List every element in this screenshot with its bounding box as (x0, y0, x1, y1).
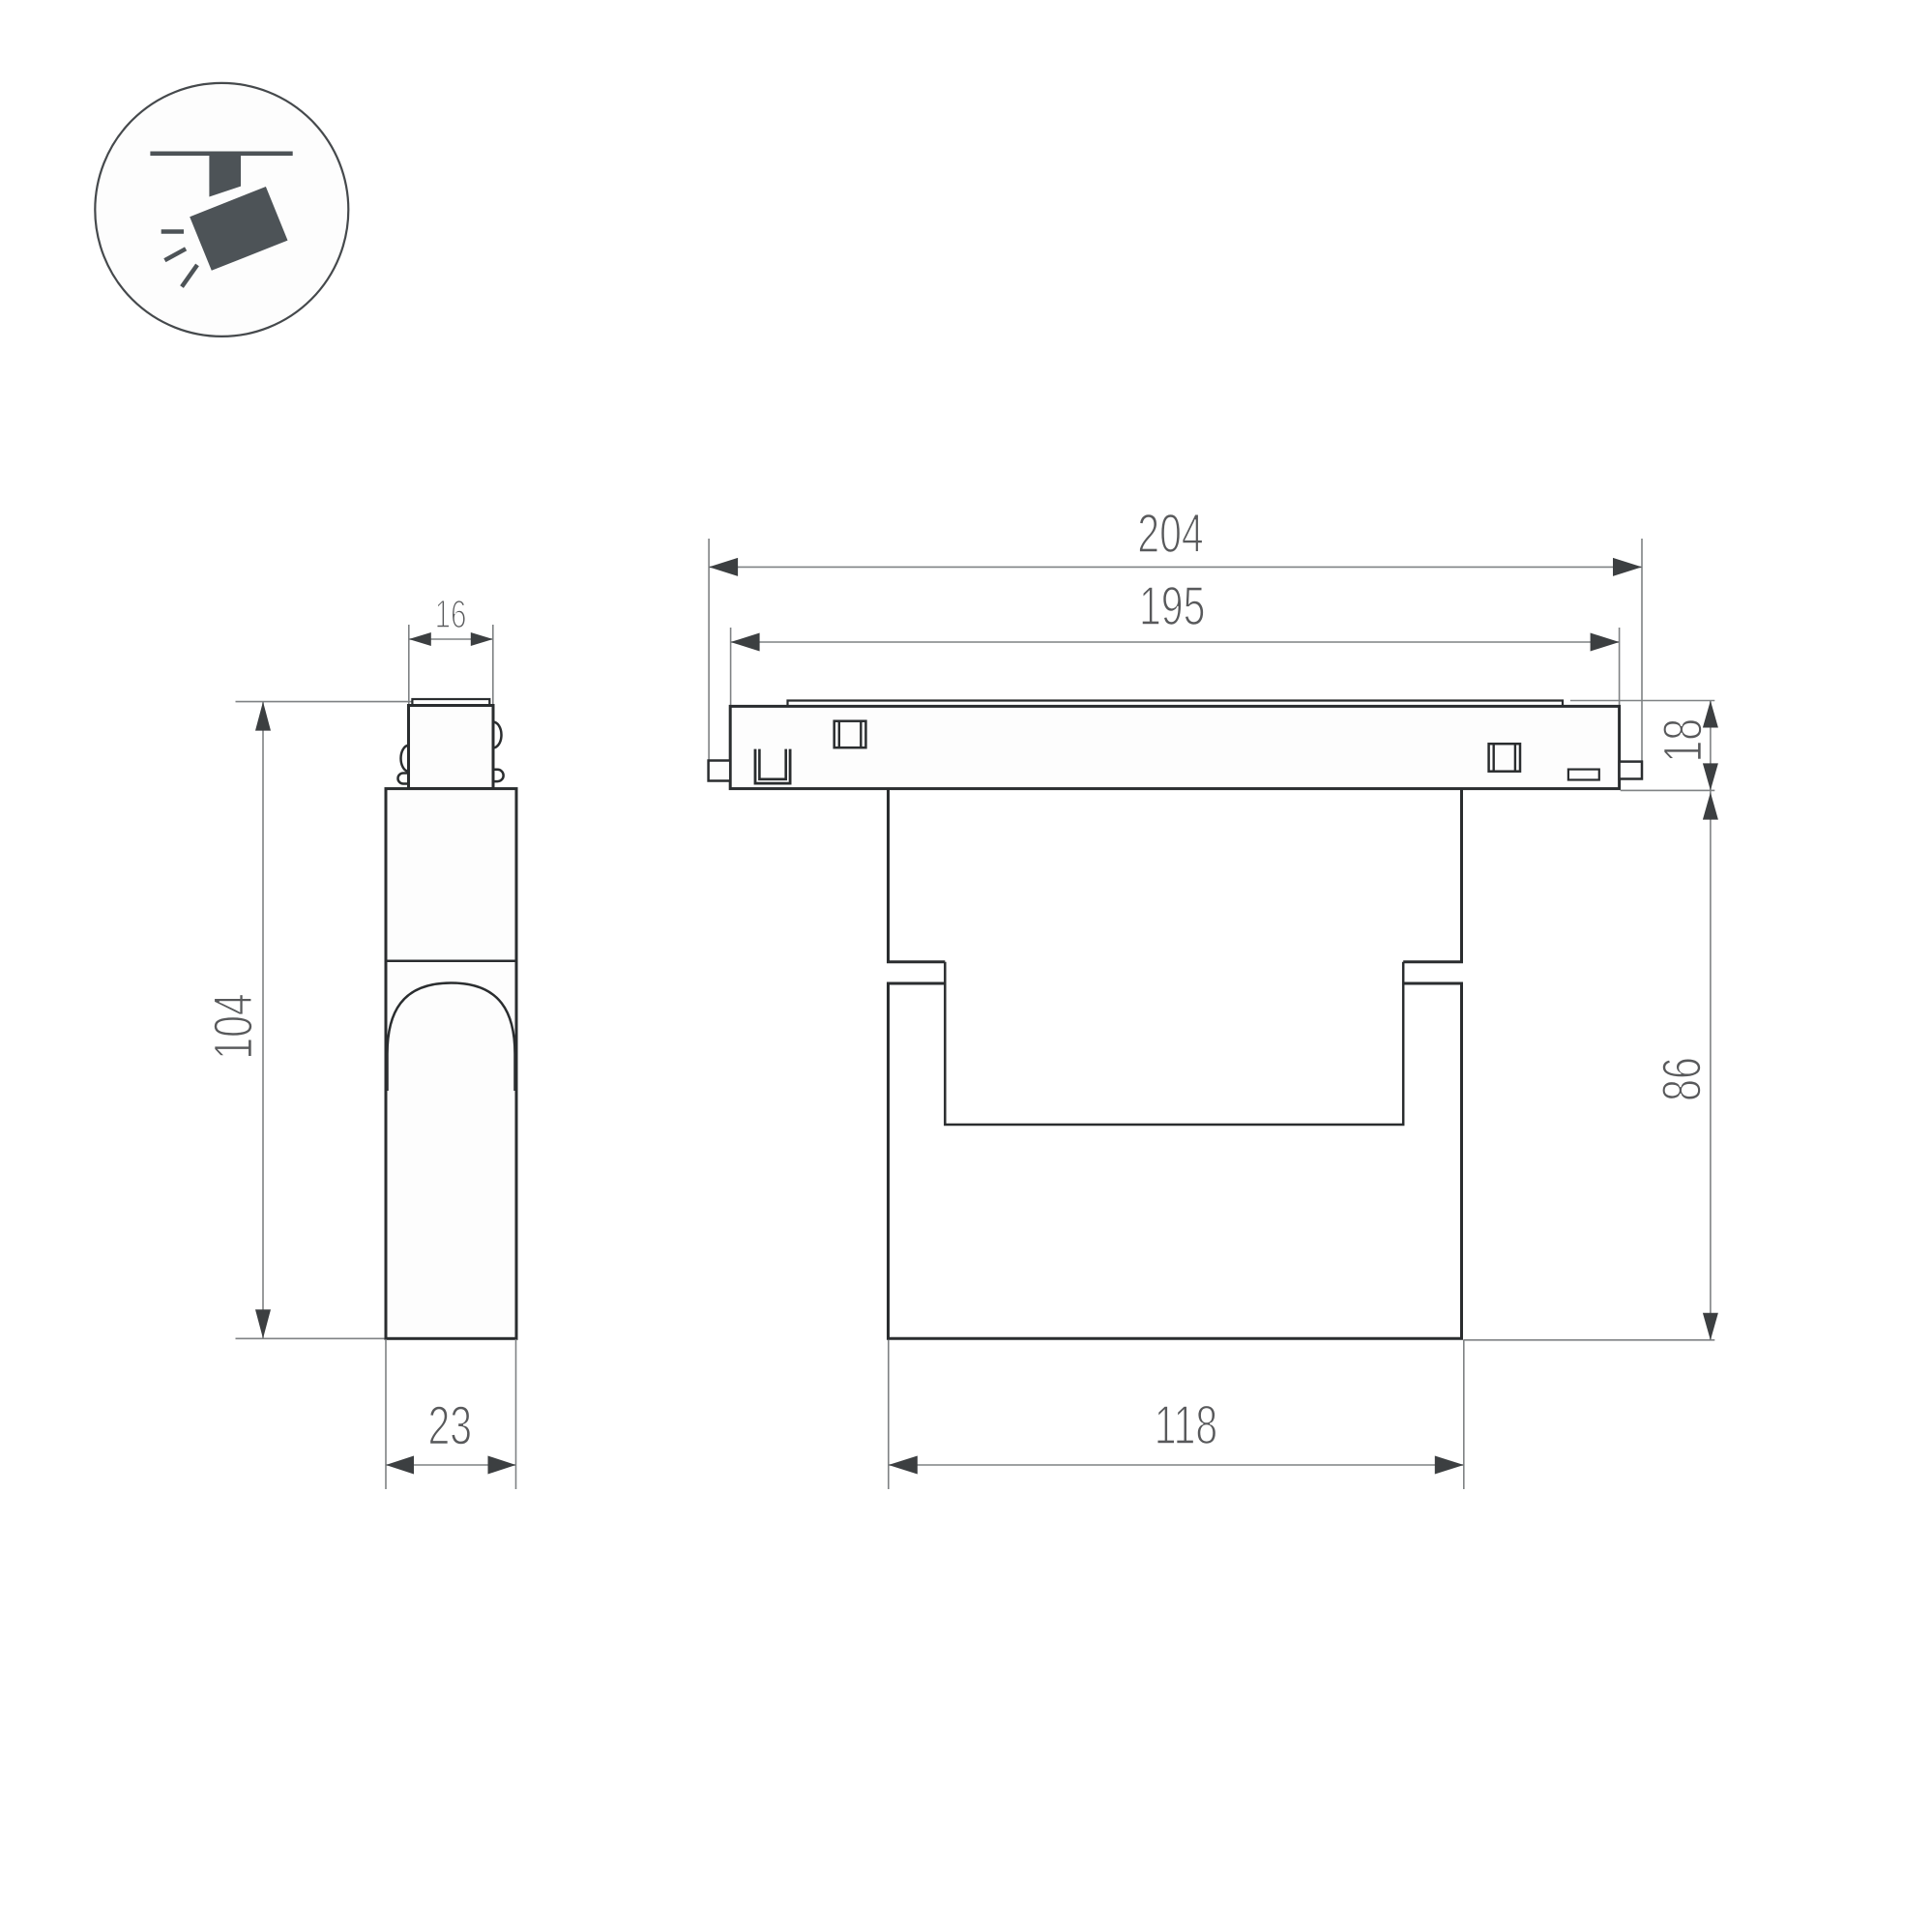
svg-text:204: 204 (1137, 502, 1203, 564)
svg-text:86: 86 (1651, 1057, 1712, 1101)
svg-text:104: 104 (202, 993, 264, 1059)
svg-text:118: 118 (1155, 1394, 1217, 1456)
svg-text:23: 23 (427, 1394, 472, 1456)
svg-text:16: 16 (435, 592, 467, 636)
svg-text:195: 195 (1139, 574, 1205, 636)
